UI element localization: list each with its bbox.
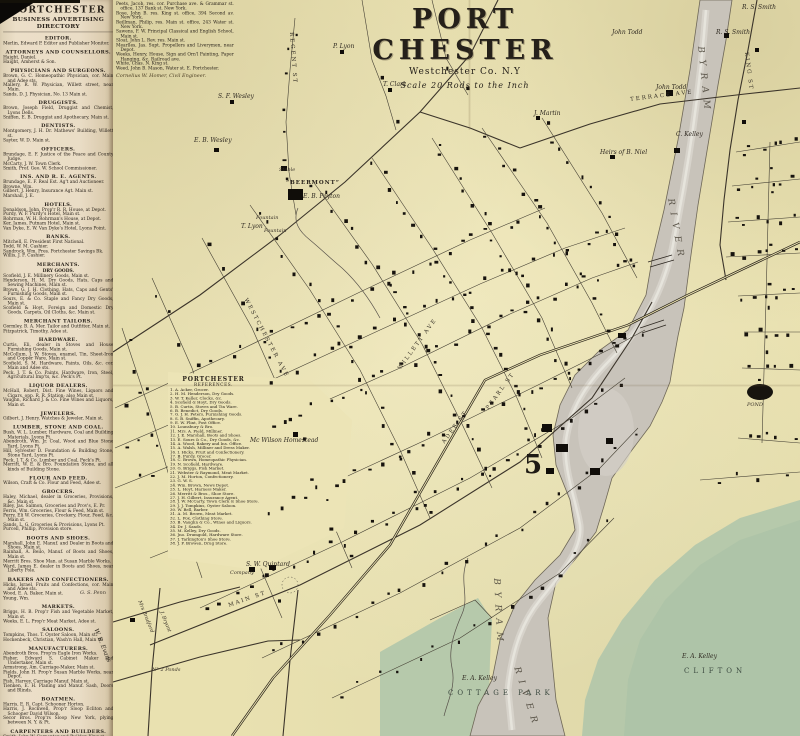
- directory-section-heading: MERCHANTS.: [3, 261, 113, 267]
- directory-entry: Sniffen, E. B. Druggist and Apothecary, …: [3, 115, 113, 120]
- directory-entry: Young, Wm.: [3, 596, 113, 601]
- directory-entry: Scofield, S. M. Hardware, Paints, Oils, …: [3, 361, 113, 370]
- directory-title: PORTCHESTER: [3, 4, 113, 15]
- directory-section-heading: CARPENTERS AND BUILDERS.: [3, 728, 113, 734]
- directory-entry: Scofield & Hoyt, Foreign and Domestic Dr…: [3, 306, 113, 315]
- map-graphics: [0, 0, 800, 736]
- references-legend: PORTCHESTER REFERENCES. 1. A. Acker, Gro…: [170, 376, 258, 658]
- directory-entry: Willis, J. F. Cashier.: [3, 254, 113, 259]
- map-canvas: PORTCHESTER BUSINESS ADVERTISING DIRECTO…: [0, 0, 800, 736]
- directory-section-subheading: DRY GOODS.: [3, 268, 113, 274]
- directory-subtitle: BUSINESS ADVERTISING DIRECTORY: [3, 16, 113, 32]
- directory-entry: Brundage, E. F. Justice of the Peace and…: [3, 152, 113, 161]
- directory-entry: Purcell, Phillip, Provision store.: [3, 527, 113, 532]
- directory-entry: Peck, J. T. & Co. Paints, Hardware, Iron…: [3, 370, 113, 379]
- title-block: PORT CHESTER Westchester Co. N.Y Scale 2…: [330, 4, 600, 90]
- directory-entry: Haight, Amherst & Son.: [3, 60, 113, 65]
- map-subtitle: Westchester Co. N.Y: [330, 67, 600, 77]
- directory-entry: Weeks, E. L. Prop'r Meat Market, Adee st…: [3, 619, 113, 624]
- directory-entry: Tienken, E. H. Planing and Manuf. Sash, …: [3, 684, 113, 693]
- directory-entry: Merlin, Edward P. Editor and Publisher M…: [3, 42, 113, 47]
- map-title: PORT CHESTER: [330, 4, 600, 66]
- directory-entry: Hockenbeck, Christian, Wash'n Hall, Main…: [3, 638, 113, 643]
- directory-entry: Gilbert, J. Henry, Watches & Jeweler, Ma…: [3, 417, 113, 422]
- directory-entry: Wilson, Craft & Co. Flour and Feed, Adee…: [3, 481, 113, 486]
- directory-entry: Sands, D. J. Physician, No. 13 Main st.: [3, 92, 113, 97]
- directory-entry: Sayter, W. D. Main st.: [3, 138, 113, 143]
- directory-entry: Vaughn, Richard J. & Co. Fine Wines and …: [3, 398, 113, 407]
- directory-entry: Van Dyke, E. W. Van Dyke's Hotel, Lyons …: [3, 226, 113, 231]
- scale-note: Scale 20 Rods to the Inch: [330, 81, 600, 90]
- legend-entry: 38. J. F. Browen, Drug Store.: [170, 541, 257, 545]
- directory-sections: EDITOR.Merlin, Edward P. Editor and Publ…: [3, 35, 113, 736]
- directory-section-heading: BOATMEN.: [3, 696, 113, 702]
- directory-entry: Fields, John H. Prop'r Susan Marble Work…: [3, 670, 113, 679]
- directory-entry: Merritt, W. E. & Bro. Foundation Stone, …: [3, 463, 113, 472]
- directory-entry: Secor Bros. Prop'rs Sloop New York, plyi…: [3, 716, 113, 725]
- business-directory: PORTCHESTER BUSINESS ADVERTISING DIRECTO…: [0, 0, 113, 736]
- directory-entry: Ward, James E. dealer in Boots and Shoes…: [3, 564, 113, 573]
- directory-section-heading: BAKERS AND CONFECTIONERS.: [3, 576, 113, 582]
- directory-entry: Marshall, J. E.: [3, 194, 113, 199]
- directory-section-heading: OFFICERS.: [3, 146, 113, 152]
- legend-entries: 1. A. Acker, Grocer.2. H. M. Henderson, …: [170, 388, 257, 545]
- directory-entry: Fitzpatrick, Timothy, Adee st.: [3, 329, 113, 334]
- directory-entry: Brown, G. J. H. Clothing, Hats, Caps and…: [3, 288, 113, 297]
- directory-section-heading: BOOTS AND SHOES.: [3, 534, 113, 540]
- directory-entry: Smith, Prof. Geo. W. School Commissioner…: [3, 166, 113, 171]
